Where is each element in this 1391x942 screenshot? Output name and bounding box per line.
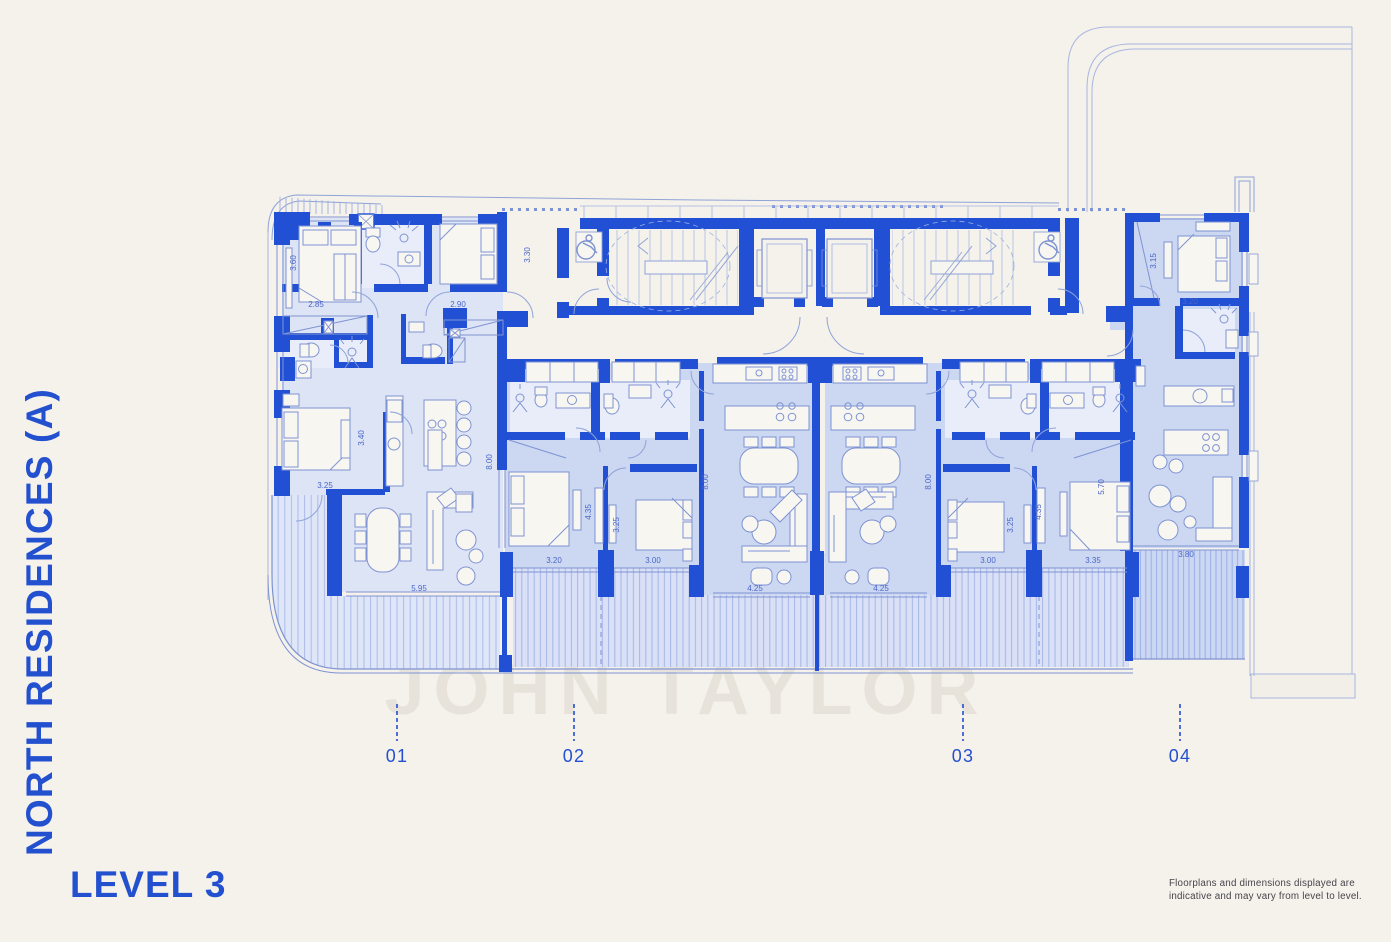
svg-text:3.25: 3.25	[1006, 517, 1015, 533]
svg-text:3.60: 3.60	[289, 255, 298, 271]
svg-text:3.00: 3.00	[645, 556, 661, 565]
svg-text:01: 01	[386, 746, 408, 766]
svg-text:8.00: 8.00	[924, 474, 933, 490]
svg-text:3.30: 3.30	[523, 247, 532, 263]
svg-text:Floorplans and dimensions disp: Floorplans and dimensions displayed are	[1169, 878, 1355, 889]
svg-text:4.25: 4.25	[747, 584, 763, 593]
svg-text:3.15: 3.15	[1149, 253, 1158, 269]
svg-text:3.40: 3.40	[357, 430, 366, 446]
svg-text:2.90: 2.90	[450, 300, 466, 309]
svg-text:3.35: 3.35	[1085, 556, 1101, 565]
svg-text:03: 03	[952, 746, 974, 766]
svg-text:8.00: 8.00	[485, 454, 494, 470]
svg-text:3.80: 3.80	[1178, 550, 1194, 559]
svg-text:5.95: 5.95	[411, 584, 427, 593]
svg-text:02: 02	[563, 746, 585, 766]
svg-text:3.25: 3.25	[317, 481, 333, 490]
svg-text:8.00: 8.00	[701, 474, 710, 490]
svg-text:3.00: 3.00	[980, 556, 996, 565]
svg-text:LEVEL 3: LEVEL 3	[70, 864, 226, 905]
svg-text:4.25: 4.25	[873, 584, 889, 593]
svg-text:3.25: 3.25	[612, 517, 621, 533]
svg-text:2.85: 2.85	[308, 300, 324, 309]
svg-text:indicative and may vary from l: indicative and may vary from level to le…	[1169, 891, 1362, 902]
svg-text:3.20: 3.20	[1182, 297, 1198, 306]
svg-text:5.70: 5.70	[1097, 479, 1106, 495]
svg-text:4.35: 4.35	[584, 504, 593, 520]
svg-text:3.20: 3.20	[546, 556, 562, 565]
svg-text:04: 04	[1169, 746, 1191, 766]
svg-text:4.35: 4.35	[1034, 504, 1043, 520]
svg-text:NORTH RESIDENCES (A): NORTH RESIDENCES (A)	[19, 388, 60, 856]
